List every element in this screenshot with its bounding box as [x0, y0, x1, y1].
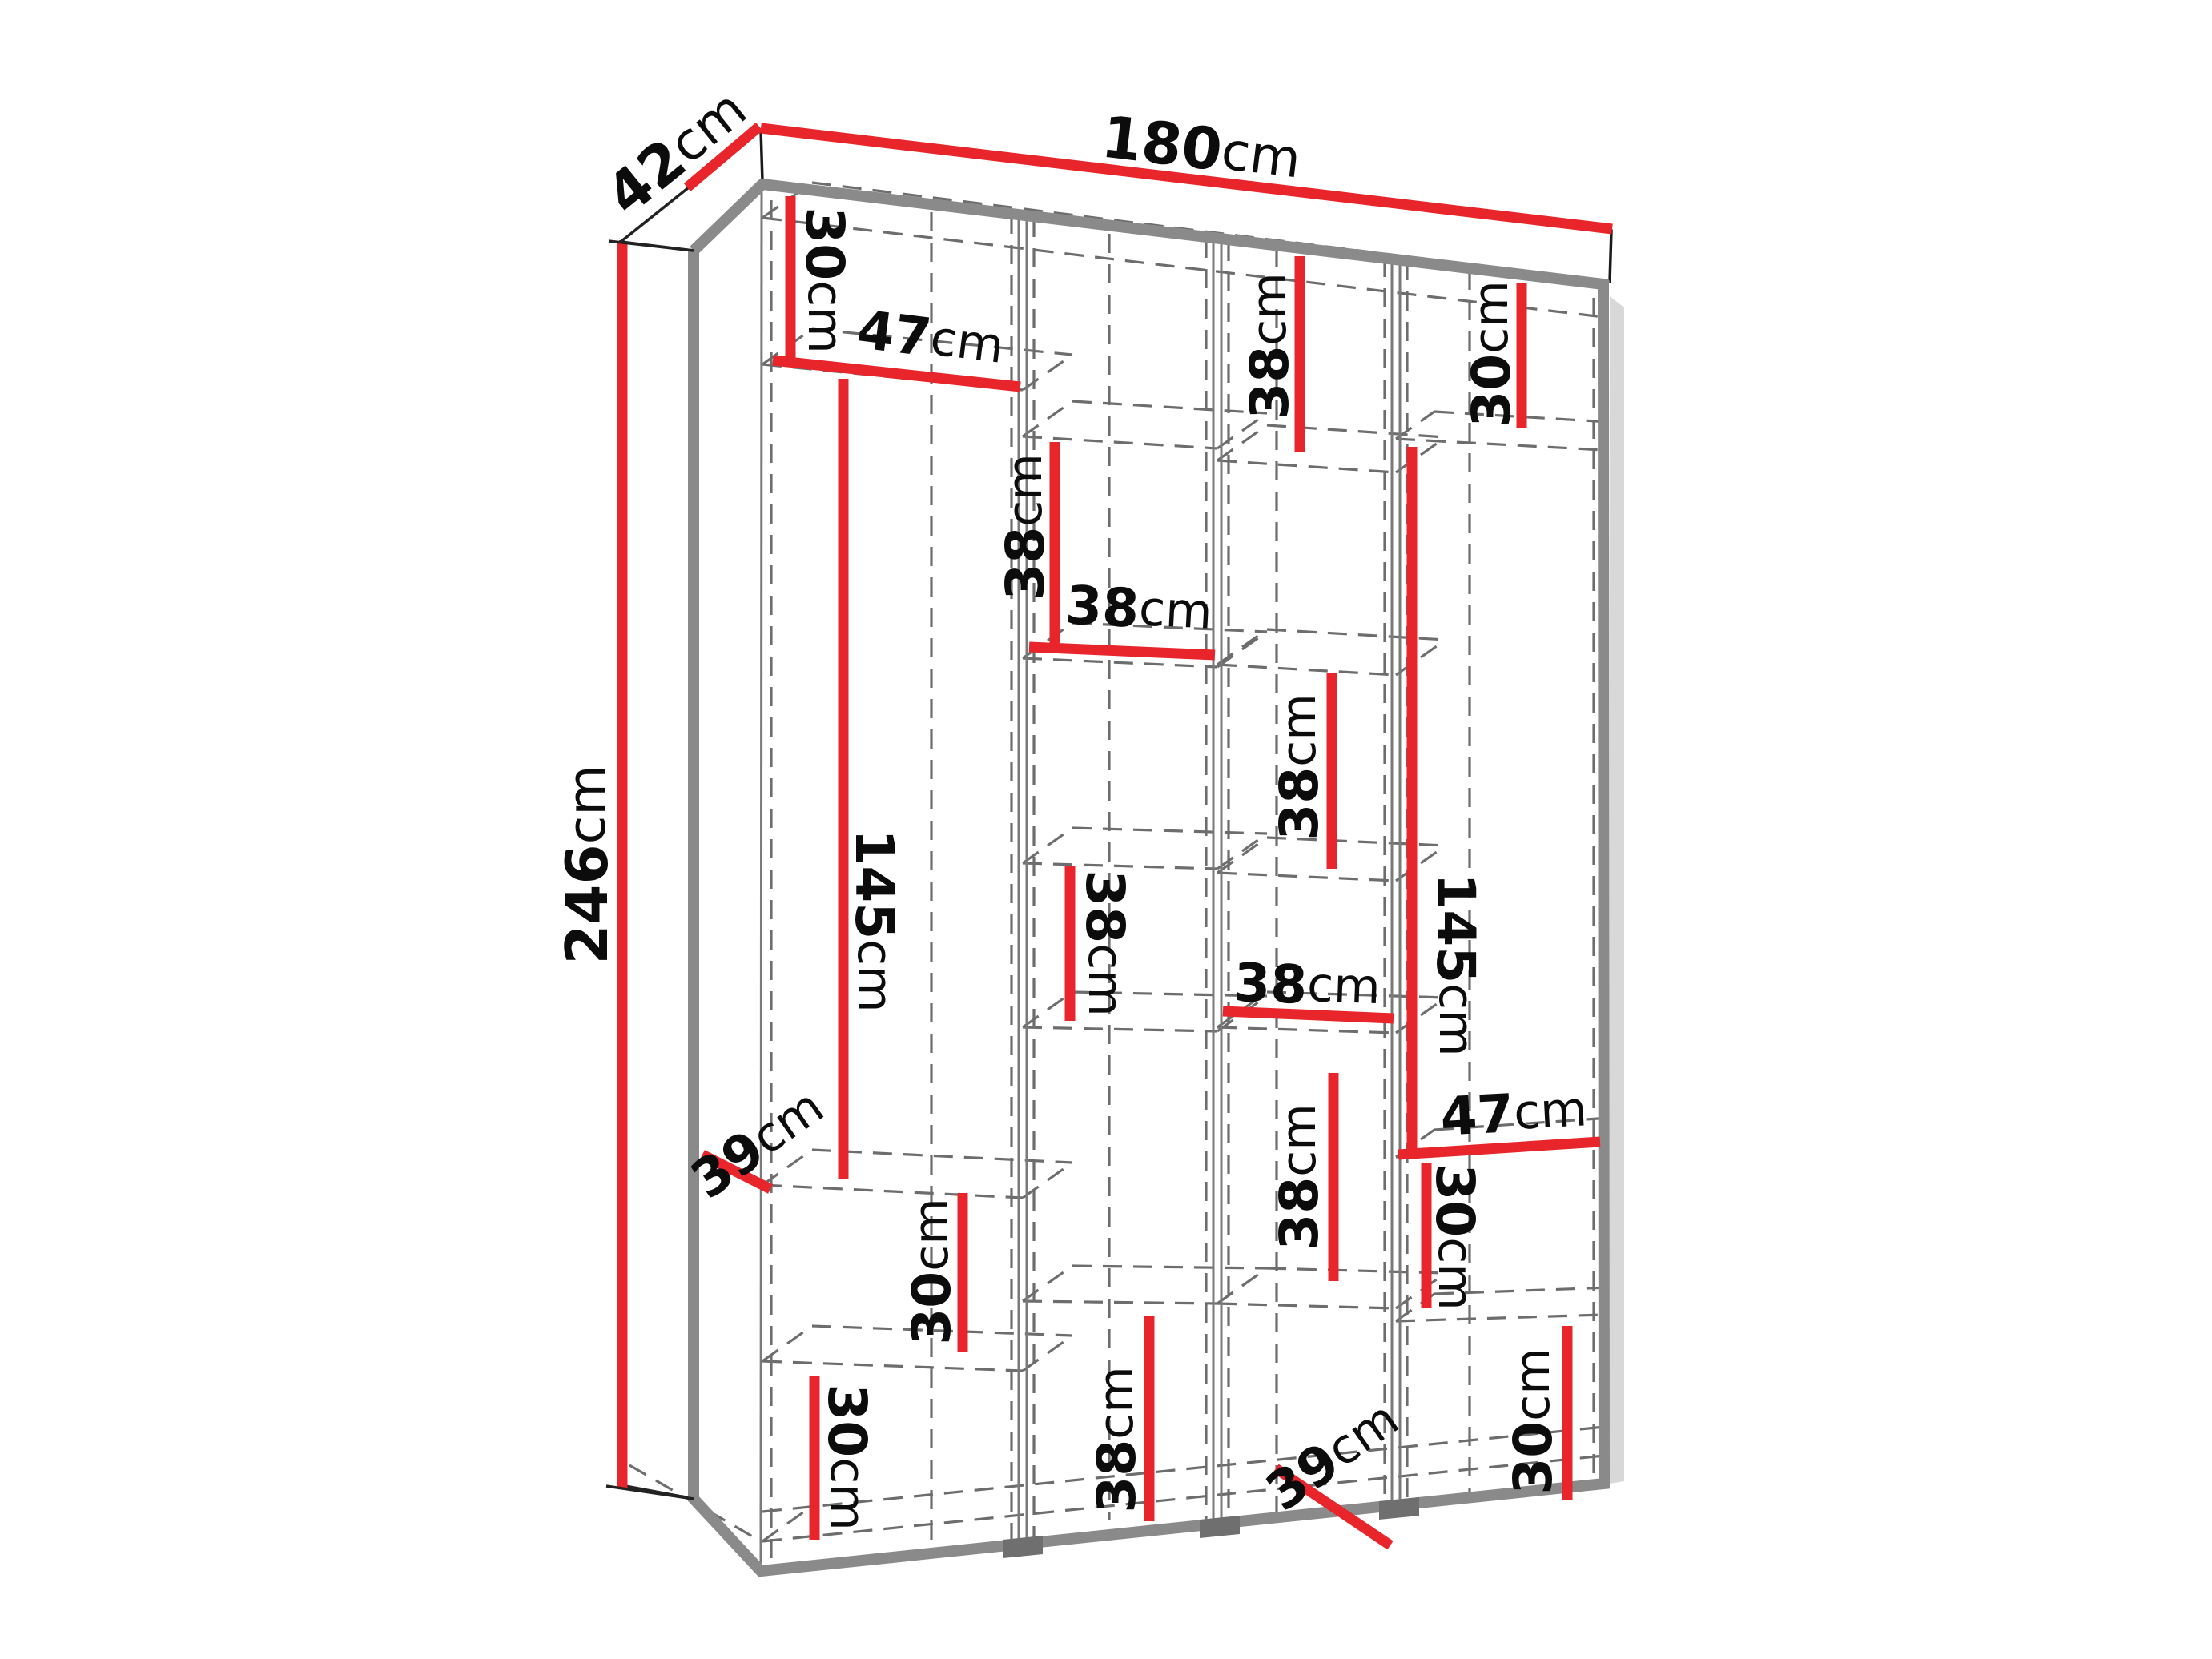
label-c4-30-top: 30cm	[1461, 280, 1522, 427]
svg-text:246cm: 246cm	[553, 765, 621, 964]
label-height-246: 246cm	[553, 765, 621, 964]
label-c4-145: 145cm	[1426, 873, 1487, 1056]
svg-text:30cm: 30cm	[1502, 1348, 1564, 1494]
label-c4-30-mid: 30cm	[1425, 1163, 1486, 1310]
shadow-right	[1610, 296, 1624, 1484]
label-c3-38-mid: 38cm	[1269, 1103, 1330, 1250]
svg-text:38cm: 38cm	[1086, 1366, 1148, 1512]
label-c3-38-w: 38cm	[1233, 951, 1381, 1018]
svg-text:38cm: 38cm	[1064, 574, 1213, 643]
label-c2-38-w: 38cm	[1064, 574, 1213, 643]
svg-text:38cm: 38cm	[1239, 272, 1301, 419]
svg-text:30cm: 30cm	[901, 1198, 963, 1344]
label-c2-38-mid: 38cm	[1075, 870, 1136, 1016]
inner-left-edge	[761, 184, 762, 1569]
label-c1-30-top: 30cm	[794, 207, 856, 353]
svg-text:38cm: 38cm	[1233, 951, 1381, 1018]
svg-text:30cm: 30cm	[1425, 1163, 1486, 1310]
svg-text:145cm: 145cm	[1426, 873, 1487, 1056]
svg-text:38cm: 38cm	[995, 453, 1056, 600]
svg-text:38cm: 38cm	[1269, 1103, 1330, 1250]
diagram-canvas: 180cm 42cm 246cm 30cm 47cm 145cm 39cm 30…	[0, 0, 2212, 1659]
label-c3-38-top: 38cm	[1239, 272, 1301, 419]
svg-text:30cm: 30cm	[1461, 280, 1522, 427]
label-c1-30-bot: 30cm	[817, 1384, 879, 1530]
svg-text:30cm: 30cm	[817, 1384, 879, 1530]
label-c3-38-u: 38cm	[1269, 693, 1330, 840]
label-c4-30-bot: 30cm	[1502, 1348, 1564, 1494]
left-side-panel	[621, 242, 694, 1499]
label-c4-47: 47cm	[1438, 1079, 1588, 1147]
svg-text:38cm: 38cm	[1269, 693, 1330, 840]
label-c1-145: 145cm	[844, 829, 906, 1012]
label-c2-38-top: 38cm	[995, 453, 1056, 600]
svg-text:145cm: 145cm	[844, 829, 906, 1012]
svg-text:30cm: 30cm	[794, 207, 856, 353]
label-c2-38-bot: 38cm	[1086, 1366, 1148, 1512]
svg-text:38cm: 38cm	[1075, 870, 1136, 1016]
svg-text:47cm: 47cm	[1438, 1079, 1588, 1147]
label-c1-30-mid: 30cm	[901, 1198, 963, 1344]
wardrobe-dimension-diagram: 180cm 42cm 246cm 30cm 47cm 145cm 39cm 30…	[0, 0, 2212, 1659]
